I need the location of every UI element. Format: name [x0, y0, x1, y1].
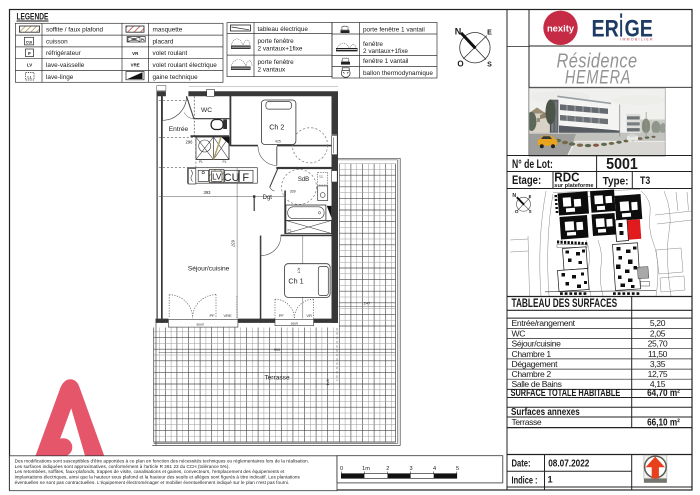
svg-text:SURFACE TOTALE HABITABLE: SURFACE TOTALE HABITABLE	[511, 387, 621, 399]
svg-text:T3: T3	[640, 175, 651, 187]
svg-text:VR: VR	[132, 51, 139, 56]
svg-text:Terrasse: Terrasse	[512, 417, 542, 427]
svg-text:425: 425	[275, 140, 281, 144]
svg-text:WC: WC	[512, 328, 526, 338]
svg-text:VRE: VRE	[131, 63, 140, 68]
svg-text:LEGENDE: LEGENDE	[17, 12, 49, 22]
svg-text:O: O	[457, 60, 463, 69]
svg-text:Chambre 2: Chambre 2	[512, 369, 552, 379]
svg-text:PL: PL	[288, 229, 292, 233]
svg-text:volet roulant: volet roulant	[153, 50, 188, 57]
svg-text:PL: PL	[199, 160, 203, 164]
svg-text:2 vantaux: 2 vantaux	[258, 66, 287, 73]
svg-text:Les surfaces indiquées sont ap: Les surfaces indiquées sont approximativ…	[15, 464, 230, 469]
svg-text:1m: 1m	[362, 466, 370, 472]
svg-text:ER: ER	[592, 15, 619, 42]
svg-text:LL: LL	[320, 175, 324, 179]
svg-text:O: O	[515, 209, 519, 215]
svg-text:247: 247	[364, 301, 371, 306]
svg-text:N: N	[455, 27, 462, 37]
svg-text:66,10 m²: 66,10 m²	[647, 417, 680, 428]
svg-text:Les retombées, soffites, faux-: Les retombées, soffites, faux-plafonds, …	[15, 469, 285, 474]
svg-text:Chambre 1: Chambre 1	[512, 349, 552, 359]
svg-text:lave-vaisselle: lave-vaisselle	[46, 62, 85, 69]
svg-text:0: 0	[340, 466, 343, 472]
svg-text:Type:: Type:	[603, 175, 629, 188]
svg-text:Date:: Date:	[512, 457, 531, 468]
svg-text:fenêtre 1 vantail: fenêtre 1 vantail	[363, 58, 408, 65]
svg-text:PF: PF	[210, 313, 216, 318]
svg-text:sur plateforme: sur plateforme	[554, 183, 593, 189]
svg-text:2: 2	[386, 466, 389, 472]
svg-text:Terrasse: Terrasse	[264, 375, 290, 382]
svg-text:S: S	[529, 209, 532, 214]
svg-text:999: 999	[274, 347, 281, 352]
svg-text:Dégagement: Dégagement	[512, 359, 559, 369]
svg-text:tableau électrique: tableau électrique	[258, 26, 309, 33]
svg-text:339: 339	[290, 190, 296, 194]
svg-text:2 vantaux+1fixe: 2 vantaux+1fixe	[258, 45, 303, 52]
svg-text:Séjour/cuisine: Séjour/cuisine	[512, 339, 562, 349]
svg-text:CUI: CUI	[26, 40, 32, 44]
svg-text:SdB: SdB	[298, 177, 309, 183]
svg-text:E: E	[529, 194, 532, 199]
svg-text:5,20: 5,20	[650, 318, 666, 328]
svg-text:éventuelles ne sont pas contra: éventuelles ne sont pas contractuelles. …	[15, 480, 290, 485]
svg-text:08.07.2022: 08.07.2022	[548, 458, 589, 469]
svg-text:réfrigérateur: réfrigérateur	[46, 50, 82, 57]
svg-text:Dgt: Dgt	[263, 195, 273, 201]
svg-text:637: 637	[231, 240, 236, 248]
svg-text:seuil: seuil	[197, 323, 204, 327]
svg-text:masquette: masquette	[153, 27, 183, 34]
svg-text:393: 393	[204, 190, 212, 195]
svg-text:N° de Lot:: N° de Lot:	[512, 159, 553, 172]
svg-text:porte fenêtre: porte fenêtre	[258, 38, 295, 45]
svg-text:ballon thermodynamique: ballon thermodynamique	[363, 70, 433, 77]
svg-text:TABLEAU DES SURFACES: TABLEAU DES SURFACES	[512, 298, 618, 311]
svg-text:volet roulant électrique: volet roulant électrique	[153, 62, 218, 69]
svg-text:Des modifications sont suscept: Des modifications sont susceptibles d'êt…	[15, 459, 309, 464]
svg-text:IMMOBILIER: IMMOBILIER	[620, 38, 654, 42]
svg-text:LV: LV	[27, 63, 32, 68]
svg-text:Surfaces annexes: Surfaces annexes	[511, 406, 580, 417]
svg-text:1: 1	[548, 475, 553, 485]
svg-text:VRE: VRE	[224, 313, 233, 318]
svg-text:nexity: nexity	[547, 22, 575, 33]
svg-text:F: F	[28, 51, 31, 56]
svg-text:5: 5	[456, 466, 459, 472]
svg-text:seuil: seuil	[291, 322, 298, 326]
svg-text:HEMERA: HEMERA	[565, 67, 631, 88]
svg-text:F: F	[242, 172, 249, 184]
svg-text:4: 4	[433, 466, 436, 472]
svg-text:placard: placard	[153, 38, 174, 45]
svg-text:12,75: 12,75	[648, 369, 668, 379]
svg-text:Etage:: Etage:	[512, 174, 541, 187]
svg-text:Entrée: Entrée	[169, 126, 189, 133]
svg-text:N: N	[512, 193, 516, 199]
svg-text:296: 296	[186, 140, 194, 145]
svg-text:soffite / faux plafond: soffite / faux plafond	[46, 27, 104, 34]
svg-text:3: 3	[409, 466, 412, 472]
svg-text:64,70 m²: 64,70 m²	[647, 387, 680, 398]
svg-text:fenêtre: fenêtre	[363, 41, 383, 48]
svg-text:Entrée/rangement: Entrée/rangement	[512, 318, 576, 328]
svg-text:5001: 5001	[606, 156, 638, 173]
svg-text:Ch 2: Ch 2	[269, 122, 284, 131]
svg-text:implantations électriques, ain: implantations électriques, ainsi que la …	[15, 475, 301, 480]
svg-text:2 vantaux+1fixe: 2 vantaux+1fixe	[363, 48, 408, 55]
svg-text:Indice :: Indice :	[512, 474, 538, 485]
svg-text:11,50: 11,50	[648, 349, 668, 359]
svg-text:3,35: 3,35	[650, 359, 666, 369]
svg-text:474: 474	[326, 379, 331, 386]
svg-text:25,70: 25,70	[648, 339, 668, 349]
svg-text:Ch 1: Ch 1	[288, 277, 303, 286]
svg-text:2,05: 2,05	[650, 328, 666, 338]
svg-text:cuisson: cuisson	[46, 38, 68, 45]
svg-text:porte fenêtre 1 vantail: porte fenêtre 1 vantail	[363, 26, 425, 33]
svg-text:407: 407	[297, 268, 301, 274]
svg-text:lave-linge: lave-linge	[46, 74, 74, 81]
svg-text:gaine technique: gaine technique	[153, 74, 199, 81]
svg-text:S: S	[487, 62, 492, 69]
svg-text:VR: VR	[306, 313, 312, 318]
svg-text:LV: LV	[212, 172, 222, 181]
svg-text:PF: PF	[279, 313, 285, 318]
svg-text:porte fenêtre: porte fenêtre	[258, 59, 295, 66]
svg-text:PL: PL	[223, 160, 227, 164]
svg-text:WC: WC	[201, 107, 212, 114]
svg-text:PL: PL	[141, 38, 145, 42]
svg-text:Séjour/cuisine: Séjour/cuisine	[188, 266, 230, 273]
svg-text:E: E	[487, 30, 492, 37]
